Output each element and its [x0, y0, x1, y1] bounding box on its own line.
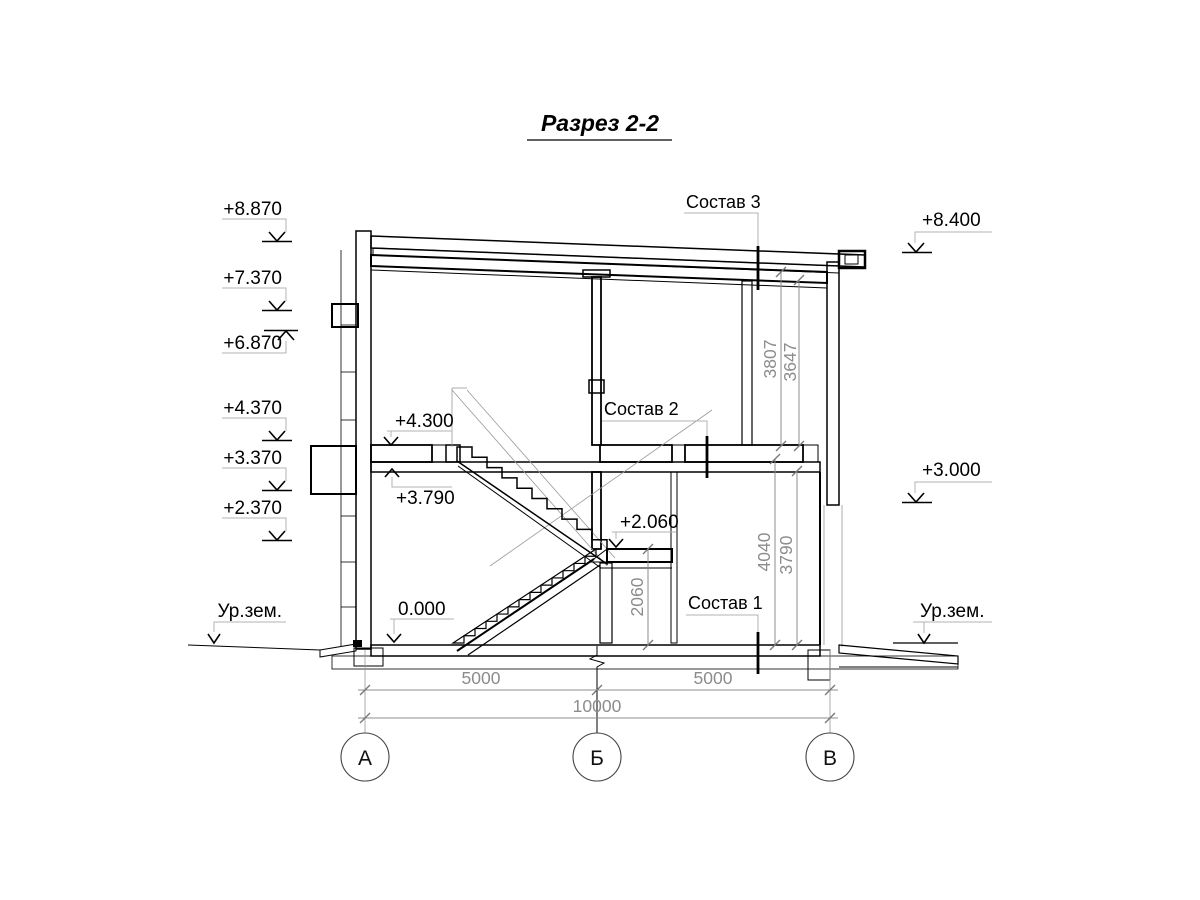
mark-shelf: [913, 622, 992, 633]
ground-level-label: Ур.зем.: [218, 601, 282, 622]
mark-shelf: [222, 418, 286, 431]
elevation-mark: +8.400: [902, 210, 992, 253]
elevation-marks-right: +8.400 +3.000 Ур.зем.: [902, 210, 992, 643]
right-wall: [820, 262, 842, 647]
slab-soffit-band: [371, 462, 820, 472]
elevation-value: +3.370: [223, 448, 282, 469]
elevation-mark: +3.370: [222, 448, 292, 491]
label-text: Состав 2: [604, 399, 679, 419]
elevation-value: +6.870: [223, 333, 282, 354]
mark-arrow: [609, 539, 623, 547]
elevation-value: +4.370: [223, 398, 282, 419]
label-roof-composition: Состав 3: [684, 192, 761, 290]
blind-area-left: [320, 644, 356, 657]
dim-value: 3807: [760, 340, 780, 379]
mark-shelf: [392, 477, 452, 487]
slab-hollow-core-right: [685, 445, 803, 462]
lower-flight-stringer-1: [457, 559, 594, 651]
level-mark-landing: +2.060: [609, 512, 679, 547]
slab-hollow-core-left: [371, 445, 432, 462]
foundation-left: [354, 648, 383, 666]
wall-base-node: [353, 640, 362, 647]
dim-storey2-b: 3647: [780, 275, 804, 451]
level-mark-floor2-soffit: +3.790: [385, 469, 455, 509]
roof-insulation-layer: [371, 236, 865, 267]
mark-shelf: [612, 532, 676, 539]
label-leader: [684, 213, 758, 246]
elevation-value: 0.000: [398, 599, 446, 620]
ground-floor-slab: [371, 645, 820, 656]
mark-arrow: [908, 493, 924, 502]
mark-arrow: [269, 232, 285, 241]
axis-label-V: В: [823, 747, 837, 770]
elevation-marks-left: +8.870 +7.370 +6.870 +4.370 +3.370: [208, 199, 298, 643]
slab-end-solid-right: [803, 445, 818, 462]
wall-projection-lower: [311, 446, 356, 494]
slab-end-solid: [432, 445, 446, 462]
axis-bubbles: А Б В: [341, 733, 854, 781]
elevation-mark: +2.370: [222, 498, 292, 541]
ground-level-label: Ур.зем.: [920, 601, 984, 622]
dim-value: 3790: [776, 535, 796, 574]
ground-level-mark-right: Ур.зем.: [913, 601, 992, 643]
dim-storey1-b: 3790: [776, 466, 802, 650]
elevation-mark: +7.370: [222, 268, 292, 311]
level-mark-floor2-top: +4.300: [384, 411, 454, 445]
label-leader: [686, 615, 758, 634]
mark-arrow: [387, 634, 401, 642]
dim-span-1: 5000: [462, 668, 501, 688]
dim-total: 10000: [573, 696, 622, 716]
left-wall: [311, 231, 371, 649]
elevation-value: +7.370: [223, 268, 282, 289]
right-wall-hatch: [827, 262, 839, 505]
mark-arrow: [269, 301, 285, 310]
ground-works: [188, 640, 958, 680]
mark-arrow: [908, 243, 924, 252]
blind-area-right: [839, 645, 958, 664]
roof-eave-cap-inner: [845, 255, 858, 264]
landing-slab: [607, 549, 672, 562]
mark-shelf: [214, 622, 286, 632]
dim-value: 4040: [754, 532, 774, 571]
mark-arrow: [208, 634, 220, 643]
dim-value: 3647: [780, 343, 800, 382]
lower-flight-stringer-2: [468, 565, 600, 655]
mark-shelf: [222, 518, 286, 531]
ground-level-mark-left: Ур.зем.: [208, 601, 286, 643]
mark-shelf: [222, 219, 286, 232]
drawing-sheet: Разрез 2-2: [0, 0, 1200, 900]
elevation-value: +3.000: [922, 460, 981, 481]
label-floor2-composition: Состав 2: [602, 399, 707, 478]
foundation-right: [808, 650, 830, 680]
mark-arrow: [269, 431, 285, 440]
bottom-dimensions: 5000 5000 10000 А Б В: [341, 646, 854, 781]
label-text: Состав 3: [686, 192, 761, 212]
upper-flight: [457, 447, 607, 564]
slab-solid-joint: [672, 445, 685, 462]
roof-assembly: [371, 236, 865, 288]
dim-landing: 2060: [627, 544, 653, 650]
mark-shelf: [222, 468, 286, 481]
label-floor1-composition: Состав 1: [686, 593, 763, 674]
upper-flight-soffit: [458, 466, 601, 568]
section-drawing-svg: Разрез 2-2: [0, 0, 1200, 900]
elevation-value: +3.790: [396, 488, 455, 509]
level-mark-floor1: 0.000: [387, 599, 454, 642]
left-wall-hatch: [356, 231, 371, 649]
elevation-mark: +6.870: [222, 331, 298, 355]
elevation-value: +8.400: [922, 210, 981, 231]
mark-arrow: [384, 437, 398, 445]
elevation-mark: +4.370: [222, 398, 292, 441]
building-section: [188, 231, 958, 680]
slab-beam-strip: [600, 445, 672, 462]
title-block: Разрез 2-2: [527, 110, 672, 140]
elevation-value: +4.300: [395, 411, 454, 432]
mark-arrow: [269, 481, 285, 490]
lower-flight-steps: [453, 549, 596, 643]
axis-label-B: Б: [590, 747, 604, 770]
partition-upper-floor: [742, 281, 752, 445]
elevation-value: +8.870: [223, 199, 282, 220]
dim-span-2: 5000: [694, 668, 733, 688]
elevation-value: +2.060: [620, 512, 679, 533]
mark-shelf: [915, 232, 992, 243]
dim-value: 2060: [627, 577, 647, 616]
mark-shelf: [222, 288, 286, 301]
column-upper: [592, 277, 601, 445]
mark-shelf: [390, 619, 454, 634]
elevation-mark: +8.870: [222, 199, 292, 242]
ground-line-left: [188, 645, 320, 650]
mark-arrow-up: [385, 469, 399, 477]
page-title: Разрез 2-2: [541, 110, 659, 136]
floor2-slab: [371, 445, 820, 472]
label-leader: [602, 421, 707, 438]
mark-arrow: [269, 531, 285, 540]
axis-label-A: А: [358, 747, 372, 770]
mark-arrow: [918, 634, 930, 643]
elevation-value: +2.370: [223, 498, 282, 519]
label-text: Состав 1: [688, 593, 763, 613]
landing-support-wall: [600, 563, 612, 643]
mark-shelf: [915, 482, 992, 493]
wall-projection-upper: [332, 304, 358, 327]
elevation-mark: +3.000: [902, 460, 992, 503]
